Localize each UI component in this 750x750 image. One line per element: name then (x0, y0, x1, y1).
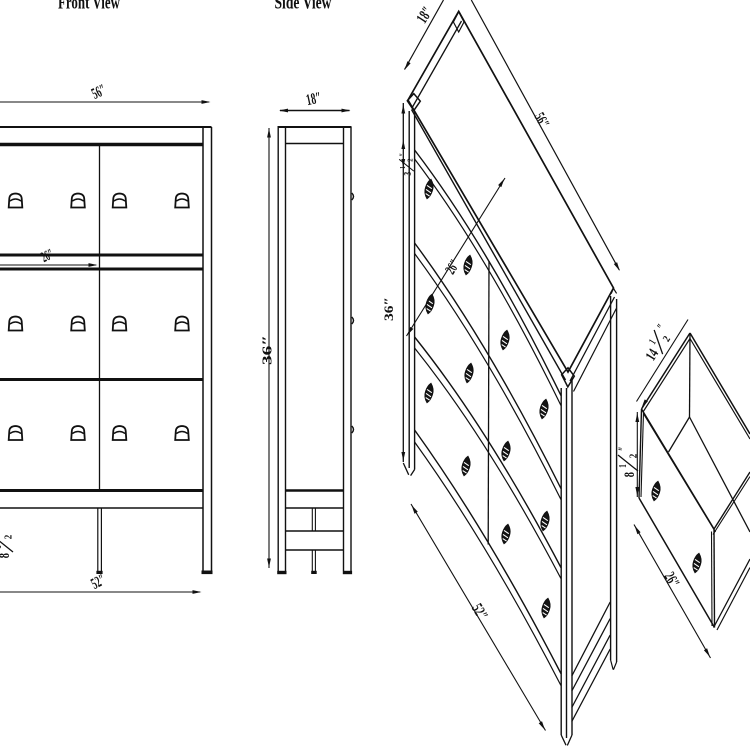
svg-text:1: 1 (618, 464, 629, 468)
svg-text:Front View: Front View (58, 0, 120, 14)
svg-text:″: ″ (0, 528, 7, 533)
svg-text:8: 8 (0, 553, 13, 558)
svg-text:1: 1 (0, 545, 4, 549)
svg-text:″: ″ (398, 153, 410, 156)
svg-text:2: 2 (406, 158, 415, 161)
svg-text:36″: 36″ (261, 335, 276, 365)
svg-text:1: 1 (398, 166, 407, 169)
svg-text:2: 2 (629, 454, 640, 459)
svg-text:3: 3 (402, 171, 414, 175)
svg-text:8: 8 (622, 472, 638, 477)
svg-text:2: 2 (4, 535, 15, 540)
svg-text:Side View: Side View (275, 0, 332, 14)
svg-text:″: ″ (616, 447, 632, 452)
svg-text:36″: 36″ (381, 297, 396, 321)
